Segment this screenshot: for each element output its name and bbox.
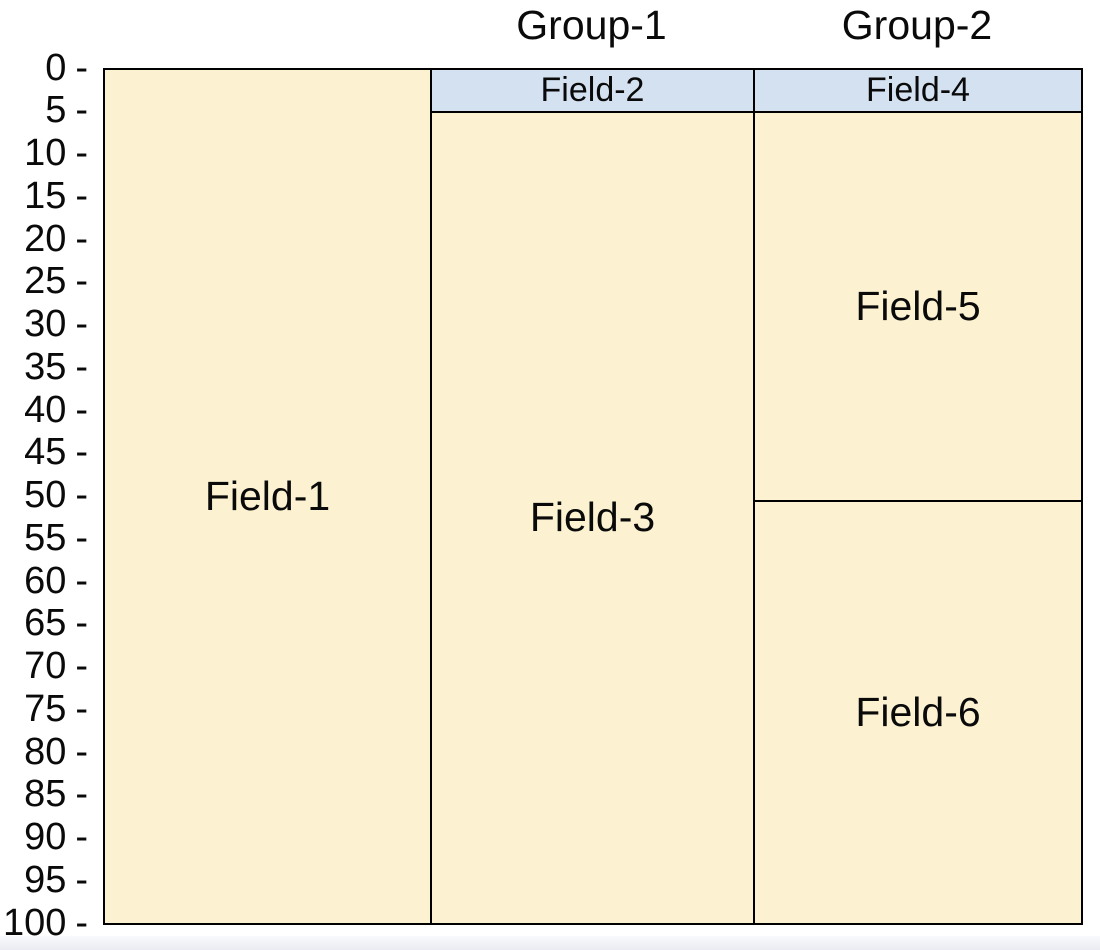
y-tick-mark: - [75, 132, 88, 175]
y-tick-mark: - [75, 389, 88, 432]
y-tick: 55- [0, 518, 88, 558]
y-tick-mark: - [75, 346, 88, 389]
field-label: Field-6 [855, 690, 980, 735]
y-tick-label: 85 [24, 773, 66, 816]
y-tick: 70- [0, 647, 88, 687]
field-label: Field-4 [866, 72, 970, 109]
y-tick: 40- [0, 390, 88, 430]
y-tick-mark: - [75, 303, 88, 346]
y-tick-label: 0 [45, 47, 66, 90]
y-tick-label: 40 [24, 389, 66, 432]
y-tick: 45- [0, 433, 88, 473]
field-label: Field-2 [541, 72, 645, 109]
y-tick-label: 90 [24, 816, 66, 859]
y-tick: 15- [0, 176, 88, 216]
field-label: Field-1 [205, 474, 330, 519]
y-tick-mark: - [75, 431, 88, 474]
y-tick-mark: - [75, 89, 88, 132]
group-label-group-2: Group-2 [842, 1, 992, 49]
y-tick: 65- [0, 604, 88, 644]
box-field-4: Field-4 [753, 68, 1083, 113]
y-tick-label: 15 [24, 175, 66, 218]
y-tick: 80- [0, 732, 88, 772]
y-tick: 25- [0, 262, 88, 302]
chart-canvas: Group-1Group-2 0-5-10-15-20-25-30-35-40-… [0, 0, 1100, 950]
y-tick-label: 20 [24, 218, 66, 261]
y-tick-label: 45 [24, 431, 66, 474]
y-tick-mark: - [75, 218, 88, 261]
y-tick-mark: - [75, 517, 88, 560]
y-tick: 60- [0, 561, 88, 601]
y-tick: 5- [0, 91, 88, 131]
y-tick-mark: - [75, 175, 88, 218]
y-tick-label: 75 [24, 688, 66, 731]
y-tick: 30- [0, 305, 88, 345]
y-tick-mark: - [75, 731, 88, 774]
y-tick-label: 35 [24, 346, 66, 389]
y-tick-mark: - [75, 645, 88, 688]
y-tick: 75- [0, 689, 88, 729]
box-field-2: Field-2 [430, 68, 755, 113]
y-tick-mark: - [75, 602, 88, 645]
y-tick-label: 30 [24, 303, 66, 346]
y-tick: 10- [0, 134, 88, 174]
y-tick-label: 70 [24, 645, 66, 688]
y-tick-label: 60 [24, 560, 66, 603]
y-tick-mark: - [75, 560, 88, 603]
y-tick-mark: - [75, 260, 88, 303]
y-tick-mark: - [75, 773, 88, 816]
y-tick-label: 95 [24, 859, 66, 902]
box-field-1: Field-1 [103, 68, 432, 925]
y-tick-label: 10 [24, 132, 66, 175]
box-field-3: Field-3 [430, 111, 755, 925]
y-tick-label: 65 [24, 602, 66, 645]
field-label: Field-5 [855, 284, 980, 329]
footer-strip [0, 936, 1100, 950]
group-label-group-1: Group-1 [516, 1, 666, 49]
y-tick-label: 50 [24, 474, 66, 517]
y-tick-mark: - [75, 474, 88, 517]
field-label: Field-3 [530, 495, 655, 540]
y-tick-label: 5 [45, 89, 66, 132]
box-field-6: Field-6 [753, 500, 1083, 925]
y-tick: 95- [0, 860, 88, 900]
y-tick: 85- [0, 775, 88, 815]
y-tick-mark: - [75, 816, 88, 859]
y-tick: 20- [0, 219, 88, 259]
box-field-5: Field-5 [753, 111, 1083, 502]
y-tick-mark: - [75, 688, 88, 731]
y-tick: 50- [0, 476, 88, 516]
y-tick-mark: - [75, 47, 88, 90]
y-tick-mark: - [75, 859, 88, 902]
y-tick: 90- [0, 818, 88, 858]
y-tick-label: 80 [24, 731, 66, 774]
y-tick: 0- [0, 48, 88, 88]
y-tick: 35- [0, 347, 88, 387]
y-tick-label: 55 [24, 517, 66, 560]
y-tick-label: 25 [24, 260, 66, 303]
